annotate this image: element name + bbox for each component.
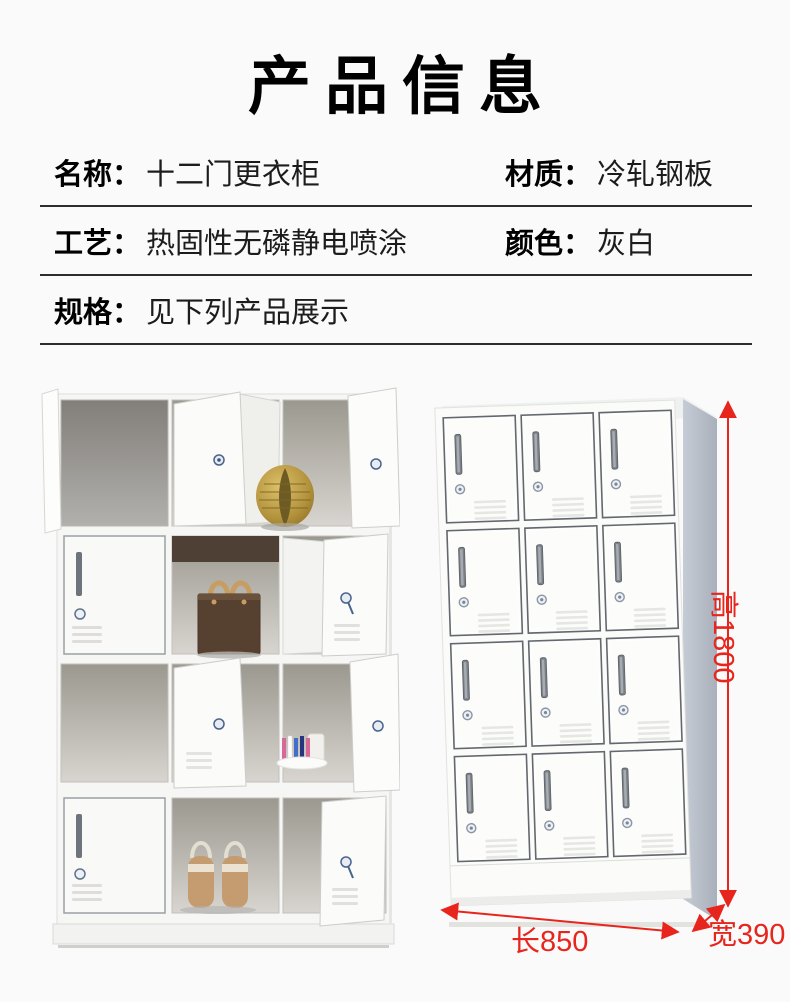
product-info-page: 产品信息 名称： 十二门更衣柜 材质： 冷轧钢板 工艺： 热固性无磷静电喷涂 颜…	[0, 0, 790, 1002]
open-compartment	[61, 664, 168, 782]
closed-door	[610, 749, 685, 856]
spec-value-name: 十二门更衣柜	[146, 151, 320, 193]
door-vent	[186, 766, 212, 769]
open-locker-photo	[28, 386, 400, 966]
open-door-panel	[174, 392, 246, 526]
cabinet-base	[53, 924, 394, 944]
spec-cell-name: 名称： 十二门更衣柜	[54, 138, 320, 205]
closed-door	[529, 639, 604, 746]
door-vent	[334, 638, 360, 641]
door-lock	[341, 593, 351, 603]
door-lock	[373, 721, 383, 731]
door-lock	[341, 857, 351, 867]
open-compartment	[61, 400, 168, 526]
door-lock	[214, 719, 224, 729]
closed-door	[451, 641, 526, 748]
spec-table: 名称： 十二门更衣柜 材质： 冷轧钢板 工艺： 热固性无磷静电喷涂 颜色： 灰白…	[40, 138, 752, 345]
door-handle	[76, 814, 82, 858]
closed-locker-illustration	[425, 380, 790, 988]
spec-row-size: 规格： 见下列产品展示	[40, 276, 752, 345]
closed-door	[532, 752, 607, 859]
spec-row-name-material: 名称： 十二门更衣柜 材质： 冷轧钢板	[40, 138, 752, 207]
spec-label-color: 颜色：	[505, 220, 592, 262]
spec-label-material: 材质：	[505, 151, 592, 193]
door-lock	[75, 869, 85, 879]
spec-cell-color: 颜色： 灰白	[505, 207, 655, 274]
door-vent	[332, 902, 358, 905]
spec-value-color: 灰白	[597, 220, 655, 262]
closed-door	[447, 528, 522, 635]
page-title: 产品信息	[0, 36, 790, 127]
closed-door	[599, 410, 674, 517]
open-door-panel	[42, 389, 61, 533]
width-dimension-label: 宽390	[708, 921, 785, 950]
door-vent	[186, 752, 212, 755]
door-lock-dot	[217, 458, 221, 462]
closed-door	[607, 636, 682, 743]
spec-label-size: 规格：	[54, 289, 141, 331]
compartment-shadow	[172, 536, 279, 562]
spec-value-process: 热固性无磷静电喷涂	[146, 220, 407, 262]
closed-door	[64, 536, 165, 654]
closed-door	[521, 413, 596, 520]
open-door-panel	[322, 534, 388, 656]
spec-cell-size: 规格： 见下列产品展示	[54, 276, 349, 343]
door-vent	[334, 631, 360, 634]
spec-cell-process: 工艺： 热固性无磷静电喷涂	[54, 207, 407, 274]
door-vent	[332, 895, 358, 898]
stationery-items	[277, 734, 327, 769]
length-dimension-label: 长850	[511, 928, 588, 957]
open-door-panel	[283, 538, 328, 654]
spec-label-name: 名称：	[54, 151, 141, 193]
spec-label-process: 工艺：	[54, 220, 141, 262]
height-dimension-label: 高1800	[708, 590, 737, 684]
door-vent	[186, 759, 212, 762]
door-vent	[332, 888, 358, 891]
door-vent	[334, 624, 360, 627]
open-locker-illustration	[28, 386, 400, 966]
handbag-item	[197, 583, 261, 659]
closed-door	[525, 526, 600, 633]
door-lock	[75, 609, 85, 619]
spec-row-process-color: 工艺： 热固性无磷静电喷涂 颜色： 灰白	[40, 207, 752, 276]
open-door-panel	[320, 796, 386, 926]
closed-door	[443, 415, 518, 522]
closed-door	[454, 754, 529, 861]
cabinet-shadow	[58, 945, 389, 948]
open-door-panel	[348, 388, 400, 528]
closed-door	[64, 798, 165, 913]
closed-locker-photo: 高1800 长850 宽390	[425, 380, 790, 988]
spec-value-size: 见下列产品展示	[146, 289, 349, 331]
closed-door	[603, 523, 678, 630]
door-lock	[371, 459, 381, 469]
door-handle	[76, 552, 82, 596]
spec-value-material: 冷轧钢板	[597, 151, 713, 193]
spec-cell-material: 材质： 冷轧钢板	[505, 138, 713, 205]
cabinet-front	[435, 400, 691, 906]
